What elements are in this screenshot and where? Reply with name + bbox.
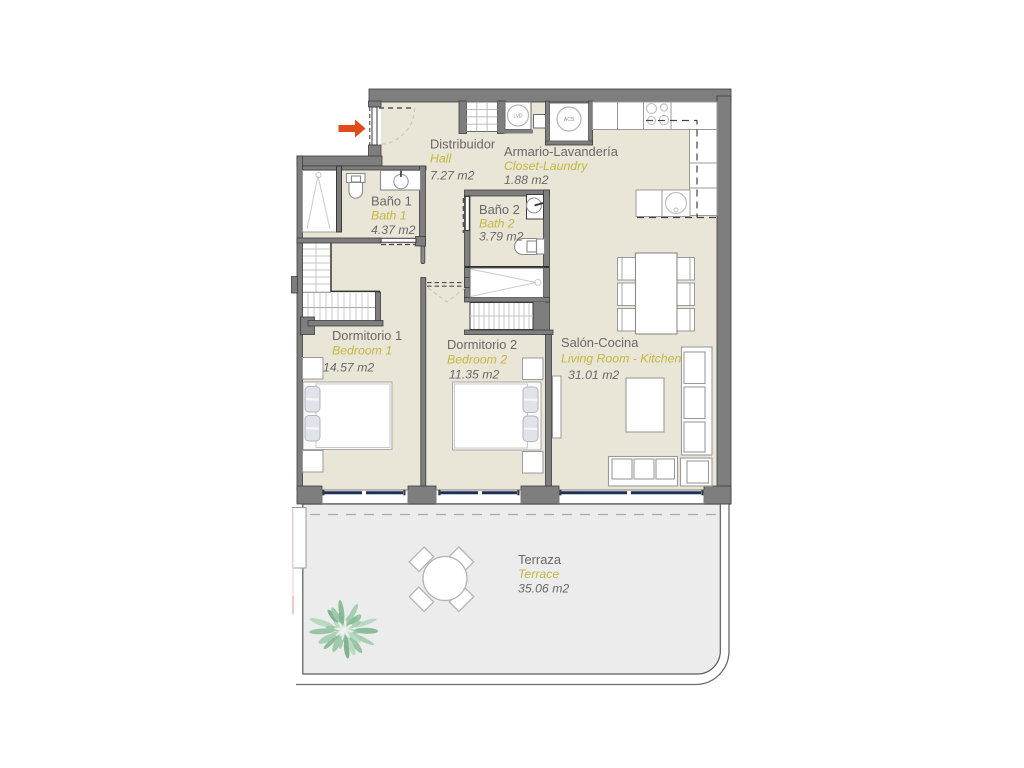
svg-text:1.88 m2: 1.88 m2: [504, 173, 549, 187]
svg-text:Hall: Hall: [430, 152, 452, 166]
svg-text:ACS: ACS: [564, 117, 575, 123]
svg-text:Baño 1: Baño 1: [371, 194, 412, 209]
svg-text:31.01 m2: 31.01 m2: [568, 368, 619, 382]
svg-text:Terrace: Terrace: [518, 567, 559, 581]
svg-text:Baño 2: Baño 2: [479, 202, 520, 217]
svg-text:35.06 m2: 35.06 m2: [518, 582, 569, 596]
svg-text:Bedroom 1: Bedroom 1: [332, 344, 392, 358]
svg-text:4.37 m2: 4.37 m2: [371, 223, 416, 237]
svg-text:3.79 m2: 3.79 m2: [479, 230, 524, 244]
svg-text:Terraza: Terraza: [518, 552, 562, 567]
svg-text:Distribuidor: Distribuidor: [430, 137, 496, 152]
svg-text:Bedroom 2: Bedroom 2: [447, 353, 507, 367]
svg-text:Bath 2: Bath 2: [479, 217, 515, 231]
svg-text:Living Room - Kitchen: Living Room - Kitchen: [561, 352, 681, 366]
svg-text:Bath 1: Bath 1: [371, 209, 407, 223]
svg-text:14.57 m2: 14.57 m2: [323, 361, 374, 375]
svg-text:Dormitorio 1: Dormitorio 1: [332, 328, 402, 343]
svg-text:Salón-Cocina: Salón-Cocina: [561, 335, 639, 350]
svg-text:Closet-Laundry: Closet-Laundry: [504, 159, 588, 173]
svg-text:Armario-Lavandería: Armario-Lavandería: [504, 144, 619, 159]
svg-text:LVD: LVD: [513, 114, 523, 120]
svg-text:11.35 m2: 11.35 m2: [449, 368, 500, 382]
svg-text:7.27 m2: 7.27 m2: [430, 169, 475, 183]
svg-text:Dormitorio 2: Dormitorio 2: [447, 337, 517, 352]
